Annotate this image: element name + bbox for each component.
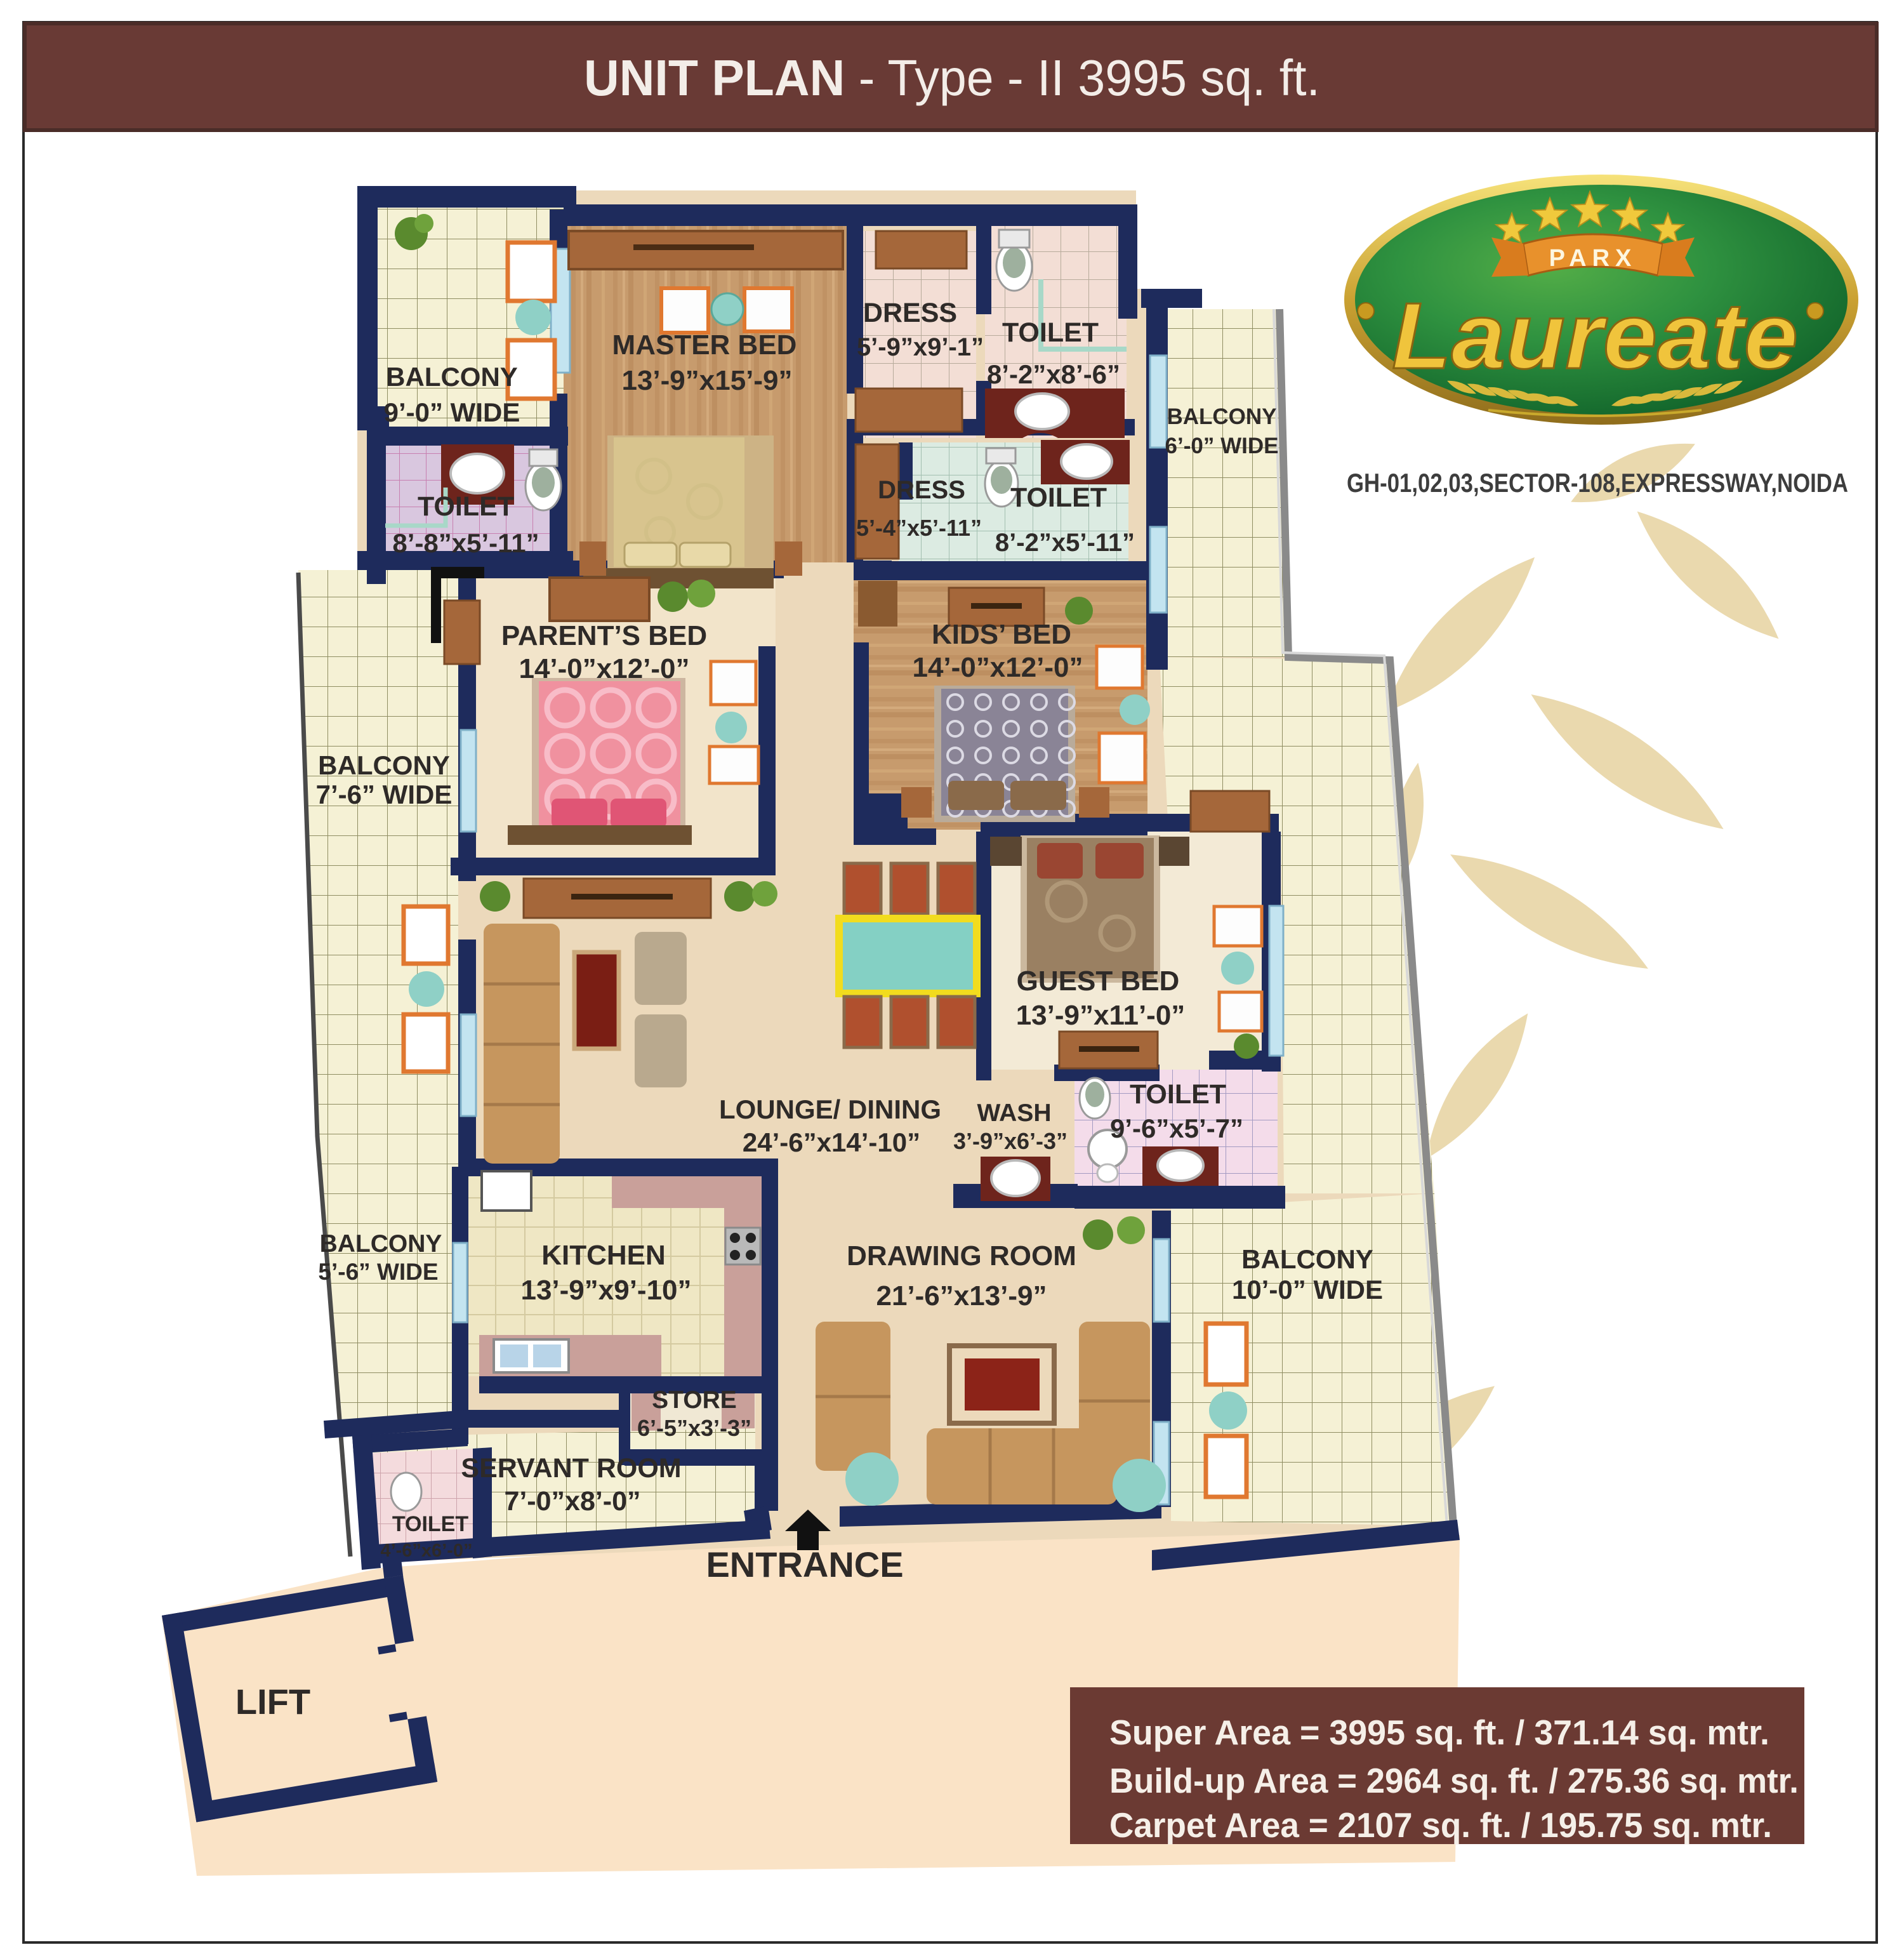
svg-text:DRAWING ROOM: DRAWING ROOM — [847, 1240, 1076, 1271]
svg-text:GUEST BED: GUEST BED — [1017, 966, 1180, 997]
svg-text:Super Area = 3995 sq. ft. / 37: Super Area = 3995 sq. ft. / 371.14 sq. m… — [1109, 1713, 1769, 1752]
svg-text:24’-6”x14’-10”: 24’-6”x14’-10” — [743, 1127, 920, 1157]
svg-text:13’-9”x15’-9”: 13’-9”x15’-9” — [621, 365, 792, 396]
svg-text:ENTRANCE: ENTRANCE — [706, 1544, 903, 1584]
svg-text:GH-01,02,03,SECTOR-108,EXPRESS: GH-01,02,03,SECTOR-108,EXPRESSWAY,NOIDA — [1347, 468, 1848, 498]
svg-text:Build-up Area = 2964 sq. ft. /: Build-up Area = 2964 sq. ft. / 275.36 sq… — [1109, 1761, 1799, 1800]
svg-text:LOUNGE/ DINING: LOUNGE/ DINING — [719, 1094, 941, 1124]
svg-text:9’-0” WIDE: 9’-0” WIDE — [384, 397, 520, 427]
svg-text:5’-4”x5’-11”: 5’-4”x5’-11” — [856, 515, 982, 541]
svg-text:TOILET: TOILET — [392, 1512, 468, 1536]
svg-text:5’-6” WIDE: 5’-6” WIDE — [318, 1259, 438, 1285]
svg-text:8’-2”x5’-11”: 8’-2”x5’-11” — [995, 529, 1135, 557]
svg-text:Laureate: Laureate — [1392, 284, 1798, 388]
svg-text:5’-9”x9’-1”: 5’-9”x9’-1” — [857, 333, 984, 361]
svg-text:Carpet Area = 2107 sq. ft. / 1: Carpet Area = 2107 sq. ft. / 195.75 sq. … — [1109, 1805, 1772, 1845]
svg-text:BALCONY: BALCONY — [1167, 404, 1276, 429]
svg-text:UNIT PLAN - Type - II 3995 sq.: UNIT PLAN - Type - II 3995 sq. ft. — [584, 50, 1320, 106]
svg-text:10’-0” WIDE: 10’-0” WIDE — [1232, 1275, 1383, 1305]
svg-text:8’-8”x5’-11”: 8’-8”x5’-11” — [392, 528, 539, 558]
svg-text:PARX: PARX — [1549, 245, 1637, 272]
svg-text:PARENT’S BED: PARENT’S BED — [501, 620, 707, 651]
svg-text:SERVANT ROOM: SERVANT ROOM — [461, 1453, 681, 1484]
svg-text:WASH: WASH — [977, 1099, 1052, 1127]
svg-text:LIFT: LIFT — [235, 1682, 310, 1722]
svg-text:9’-6”x5’-7”: 9’-6”x5’-7” — [1110, 1113, 1243, 1143]
svg-text:6’-0” WIDE: 6’-0” WIDE — [1165, 434, 1279, 458]
svg-text:13’-9”x9’-10”: 13’-9”x9’-10” — [520, 1275, 691, 1306]
svg-text:KITCHEN: KITCHEN — [541, 1240, 666, 1271]
svg-text:DRESS: DRESS — [863, 298, 957, 328]
svg-text:TOILET: TOILET — [1002, 317, 1099, 348]
svg-text:BALCONY: BALCONY — [318, 750, 450, 780]
svg-text:BALCONY: BALCONY — [1241, 1244, 1373, 1274]
svg-text:STORE: STORE — [652, 1386, 737, 1414]
svg-text:TOILET: TOILET — [1010, 482, 1107, 513]
svg-text:6’-5”x3’-3”: 6’-5”x3’-3” — [637, 1415, 751, 1441]
svg-text:TOILET: TOILET — [1130, 1079, 1226, 1110]
svg-text:KIDS’ BED: KIDS’ BED — [932, 619, 1071, 650]
svg-text:DRESS: DRESS — [878, 476, 965, 504]
svg-text:21’-6”x13’-9”: 21’-6”x13’-9” — [876, 1280, 1047, 1311]
svg-text:13’-9”x11’-0”: 13’-9”x11’-0” — [1016, 1000, 1186, 1031]
svg-text:7’-6” WIDE: 7’-6” WIDE — [316, 780, 453, 809]
svg-text:8’-2”x8’-6”: 8’-2”x8’-6” — [987, 359, 1120, 389]
svg-text:7’-0”x8’-0”: 7’-0”x8’-0” — [504, 1486, 640, 1517]
svg-text:14’-0”x12’-0”: 14’-0”x12’-0” — [519, 653, 689, 684]
svg-text:MASTER BED: MASTER BED — [612, 329, 797, 361]
svg-text:14’-0”x12’-0”: 14’-0”x12’-0” — [912, 652, 1083, 683]
svg-text:TOILET: TOILET — [418, 491, 514, 522]
svg-text:3’-9”x6’-3”: 3’-9”x6’-3” — [953, 1128, 1068, 1154]
svg-text:4’-6”x6’-0”: 4’-6”x6’-0” — [380, 1541, 472, 1561]
svg-text:BALCONY: BALCONY — [386, 362, 518, 392]
svg-text:BALCONY: BALCONY — [320, 1230, 442, 1258]
